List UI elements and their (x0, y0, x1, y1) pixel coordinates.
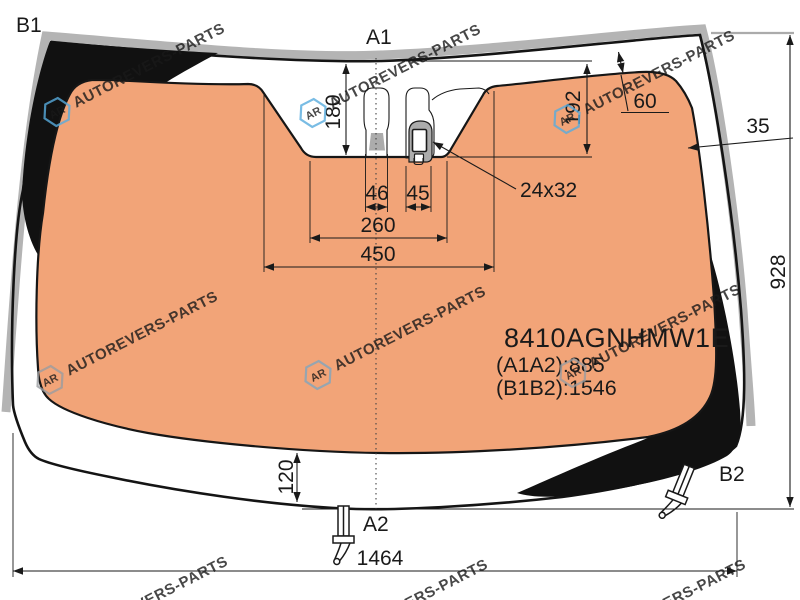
windshield-diagram-page: 180 192 60 35 928 46 45 260 450 24x32 12… (0, 0, 800, 600)
dim-1464: 1464 (357, 547, 404, 570)
label-a1: A1 (366, 26, 392, 49)
dim-35: 35 (746, 115, 769, 138)
clip-a2 (333, 506, 354, 565)
watermark: AR AUTOREVERS-PARTS (42, 549, 232, 600)
part-b1b2: (B1B2):1546 (496, 376, 617, 400)
windshield-diagram: 180 192 60 35 928 46 45 260 450 24x32 12… (0, 0, 800, 600)
svg-text:AUTOREVERS-PARTS: AUTOREVERS-PARTS (73, 553, 231, 600)
svg-text:AR: AR (304, 105, 324, 123)
svg-text:AUTOREVERS-PARTS: AUTOREVERS-PARTS (326, 21, 484, 113)
watermark: AR AUTOREVERS-PARTS (560, 552, 750, 600)
mirror-button (369, 133, 385, 151)
label-a2: A2 (363, 513, 389, 536)
dim-928: 928 (767, 254, 790, 289)
svg-text:AUTOREVERS-PARTS: AUTOREVERS-PARTS (591, 556, 749, 600)
dim-450: 450 (360, 243, 395, 266)
dim-46: 46 (365, 182, 388, 205)
dim-120: 120 (275, 459, 298, 494)
dim-24x32: 24x32 (520, 179, 577, 202)
dim-260: 260 (360, 214, 395, 237)
label-b1: B1 (16, 14, 42, 37)
label-b2: B2 (719, 463, 745, 486)
sensor-notch (415, 154, 424, 162)
sensor-window (413, 130, 427, 152)
dim-45: 45 (406, 182, 429, 205)
